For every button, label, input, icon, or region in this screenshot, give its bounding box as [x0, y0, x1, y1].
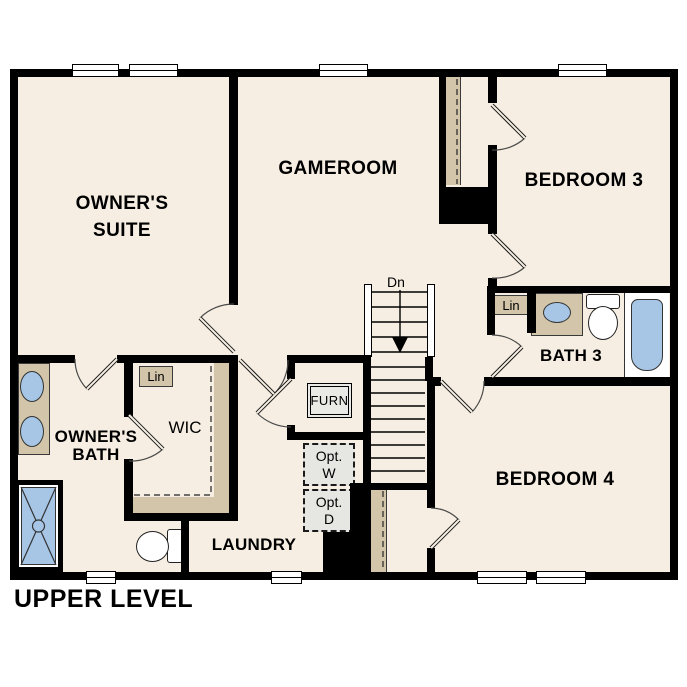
room-label-bath3: BATH 3: [540, 346, 602, 366]
room-label-bedroom3: BEDROOM 3: [525, 170, 644, 192]
room-label-bedroom4: BEDROOM 4: [496, 469, 615, 491]
shower-drain: [33, 520, 45, 532]
plan-title: UPPER LEVEL: [14, 585, 193, 614]
stairs-dn-label: Dn: [387, 274, 405, 290]
room-label-owners-suite: OWNER'S SUITE: [76, 190, 169, 244]
room-label-wic: WIC: [168, 418, 201, 438]
stair-down-arrow: [392, 337, 408, 353]
room-label-gameroom: GAMEROOM: [278, 158, 397, 180]
room-label-owners-bath: OWNER'S BATH: [55, 428, 138, 464]
plan-linework-svg: [0, 0, 687, 687]
room-label-laundry: LAUNDRY: [212, 535, 297, 555]
floor-plan: Lin Lin Opt. W Opt. D FURN: [0, 0, 687, 687]
